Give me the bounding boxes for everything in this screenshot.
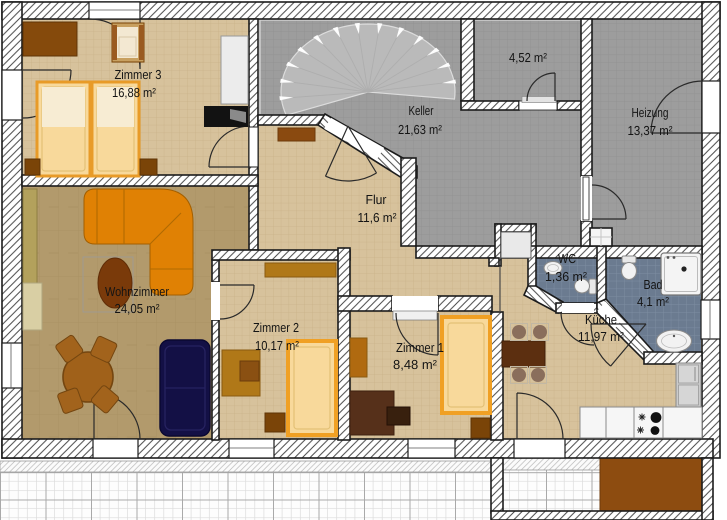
svg-text:Zimmer 3: Zimmer 3 [115, 67, 162, 82]
svg-text:WC: WC [558, 251, 576, 266]
svg-text:11,97 m²: 11,97 m² [578, 329, 625, 344]
svg-text:4,52 m²: 4,52 m² [509, 50, 548, 65]
svg-text:8,48 m²: 8,48 m² [393, 357, 438, 372]
svg-text:Küche: Küche [585, 312, 617, 327]
svg-text:Bad: Bad [644, 277, 663, 292]
svg-text:11,6 m²: 11,6 m² [358, 210, 398, 225]
svg-text:16,88 m²: 16,88 m² [112, 85, 157, 100]
svg-text:21,63 m²: 21,63 m² [398, 122, 443, 137]
svg-text:Heizung: Heizung [632, 105, 669, 120]
svg-text:Flur: Flur [366, 192, 388, 207]
svg-text:Zimmer 2: Zimmer 2 [253, 320, 299, 335]
svg-text:10,17 m²: 10,17 m² [255, 338, 300, 353]
svg-text:Wohnzimmer: Wohnzimmer [105, 284, 170, 299]
svg-text:24,05 m²: 24,05 m² [115, 301, 161, 316]
svg-text:Zimmer 1: Zimmer 1 [396, 340, 444, 355]
svg-text:Keller: Keller [409, 103, 434, 118]
svg-text:13,37 m²: 13,37 m² [628, 123, 674, 138]
svg-text:1,36 m²: 1,36 m² [545, 269, 588, 284]
svg-text:4,1 m²: 4,1 m² [637, 294, 670, 309]
